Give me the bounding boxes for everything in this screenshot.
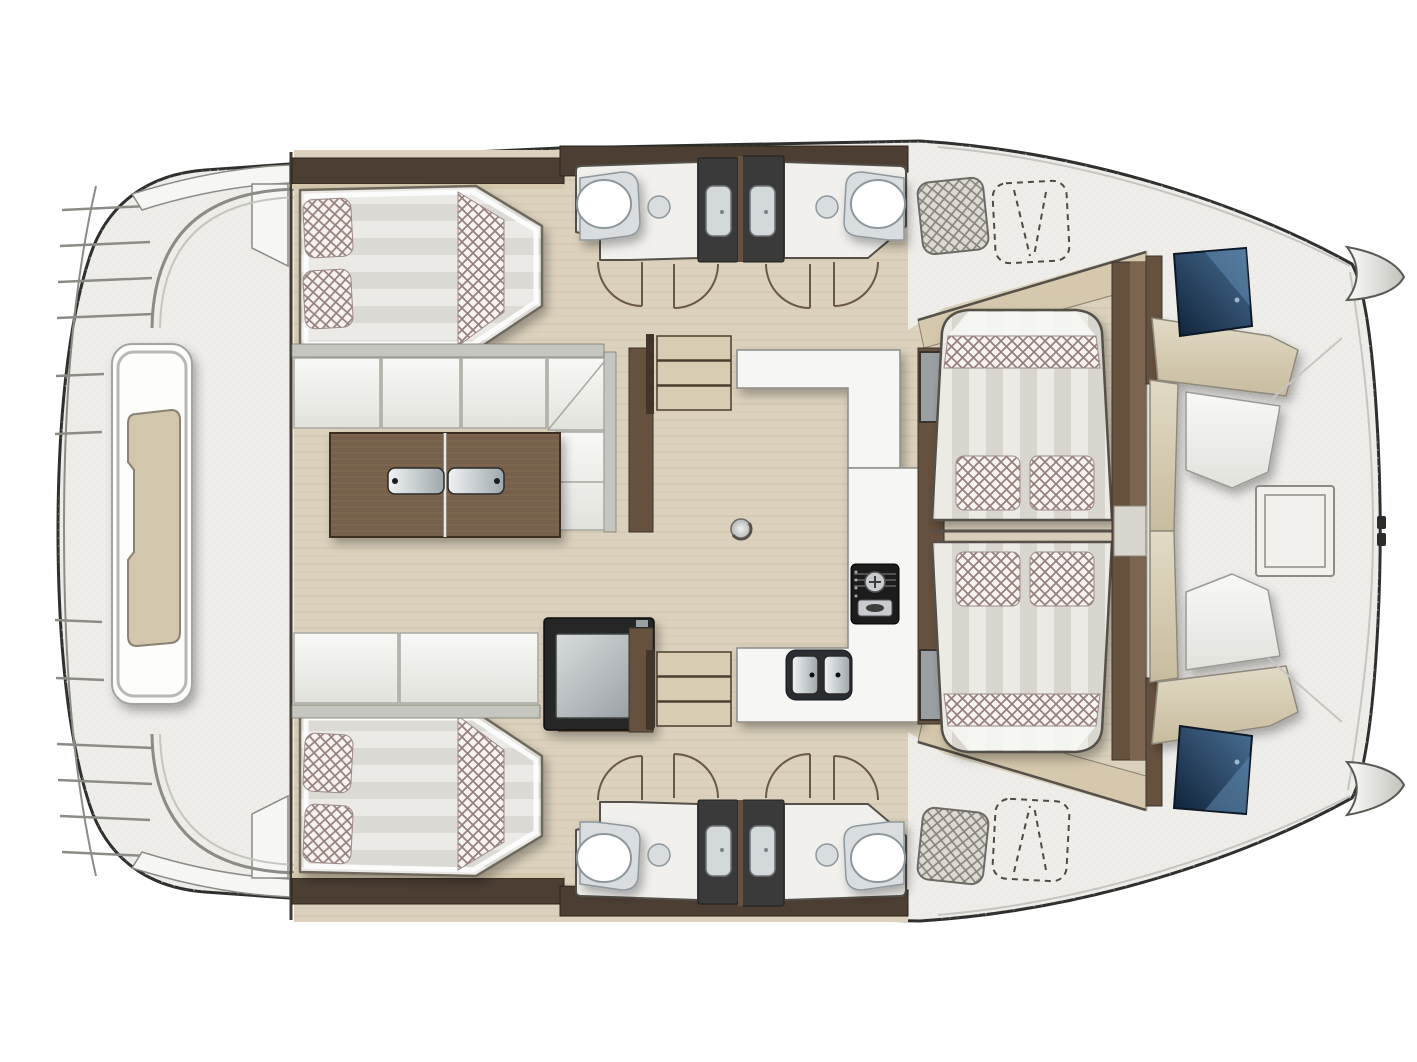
toilet-bowl bbox=[577, 834, 631, 882]
catamaran-floorplan-diagram bbox=[0, 0, 1417, 1062]
sofa-seat bbox=[294, 633, 398, 703]
double-sink-icon bbox=[786, 650, 852, 700]
shower-tray bbox=[706, 826, 731, 876]
sofa-backrest-top bbox=[292, 344, 604, 357]
bow-cushion-bottom bbox=[1186, 574, 1280, 670]
pillow bbox=[956, 552, 1020, 606]
double-bed bbox=[300, 186, 542, 350]
window-dot bbox=[1235, 298, 1240, 303]
drain-dot bbox=[764, 848, 768, 852]
head-compartments-port bbox=[560, 146, 908, 262]
sink-basin bbox=[648, 844, 670, 866]
bow-backrest-left-bottom bbox=[1150, 531, 1178, 682]
coffee-tables bbox=[330, 433, 560, 537]
pillow bbox=[303, 269, 354, 329]
stair-tread bbox=[657, 336, 731, 360]
forward-divider-wall bbox=[1112, 262, 1146, 760]
shower-tray bbox=[706, 186, 731, 236]
bench-headrest bbox=[948, 726, 1096, 750]
pillow bbox=[956, 456, 1020, 510]
unit-latch bbox=[636, 620, 648, 627]
handle-dot bbox=[392, 478, 398, 484]
pillow bbox=[1030, 552, 1094, 606]
cabin-wall-bottom bbox=[292, 878, 564, 904]
pillow bbox=[303, 804, 354, 864]
pillow bbox=[303, 198, 354, 258]
bench-headrest bbox=[948, 312, 1096, 336]
yacht-floorplan-canvas bbox=[0, 0, 1417, 1062]
sofa-backrest-right bbox=[604, 352, 616, 532]
stairs-to-starboard-hull bbox=[646, 650, 731, 730]
handle-dot bbox=[494, 478, 500, 484]
divider-door-gap bbox=[1114, 506, 1146, 556]
bow-cushion-top bbox=[1186, 392, 1280, 488]
bow-backrest-left-top bbox=[1150, 380, 1178, 531]
shower-stalls bbox=[698, 800, 784, 906]
aft-platform-bench bbox=[112, 344, 192, 704]
shower-stalls bbox=[698, 156, 784, 262]
sofa-return-seat bbox=[556, 432, 604, 530]
sofa-seat bbox=[400, 633, 538, 703]
stair-tread bbox=[657, 361, 731, 385]
sofa-seat bbox=[294, 358, 380, 428]
stair-tread bbox=[657, 386, 731, 410]
drain-dot bbox=[720, 848, 724, 852]
bench-check-band bbox=[944, 694, 1100, 726]
window-dot bbox=[1235, 760, 1240, 765]
toilet-left bbox=[577, 172, 640, 240]
toilet-right bbox=[844, 822, 905, 890]
drain-dot bbox=[764, 210, 768, 214]
bench-check-band bbox=[944, 336, 1100, 368]
toilet-left bbox=[577, 822, 640, 890]
bow-cleat bbox=[1377, 533, 1386, 546]
cabin-wall-top bbox=[292, 158, 564, 184]
shower-divider bbox=[738, 156, 743, 262]
double-bed bbox=[300, 712, 542, 876]
toilet-bowl bbox=[577, 180, 631, 228]
lounge-bench-bottom bbox=[932, 542, 1112, 752]
sofa-seat bbox=[462, 358, 546, 428]
sofa-seat bbox=[382, 358, 460, 428]
toilet-bowl bbox=[851, 180, 905, 228]
stove-icon bbox=[851, 564, 899, 624]
table-floor-mount bbox=[731, 519, 751, 539]
foredeck-hatch bbox=[1256, 486, 1334, 576]
sink-basin bbox=[816, 196, 838, 218]
pillow bbox=[1030, 456, 1094, 510]
toilet-right bbox=[844, 172, 905, 240]
drain-dot bbox=[720, 210, 724, 214]
lounge-bench-top bbox=[932, 310, 1112, 520]
bow-cleat bbox=[1377, 516, 1386, 529]
sofa-bottom bbox=[294, 633, 538, 703]
toilet-bowl bbox=[851, 834, 905, 882]
stair-tread bbox=[657, 652, 731, 676]
stair-rail bbox=[646, 650, 654, 730]
forward-lounge bbox=[932, 262, 1146, 760]
shower-divider bbox=[738, 800, 743, 906]
sink-basin bbox=[648, 196, 670, 218]
head-compartments-starboard bbox=[560, 800, 908, 916]
pillow bbox=[303, 733, 354, 793]
deck-pad-bottom bbox=[916, 807, 989, 886]
shower-tray bbox=[750, 186, 775, 236]
stair-rail bbox=[646, 334, 654, 414]
deck-pad-top bbox=[916, 177, 989, 256]
stairs-to-port-hull bbox=[646, 334, 731, 414]
sofa-backrest-bottom bbox=[292, 705, 540, 718]
stair-tread bbox=[657, 677, 731, 701]
hatch-frame bbox=[1256, 486, 1334, 576]
stair-tread bbox=[657, 702, 731, 726]
sink-basin bbox=[816, 844, 838, 866]
bench-cushion bbox=[128, 410, 180, 646]
shower-tray bbox=[750, 826, 775, 876]
